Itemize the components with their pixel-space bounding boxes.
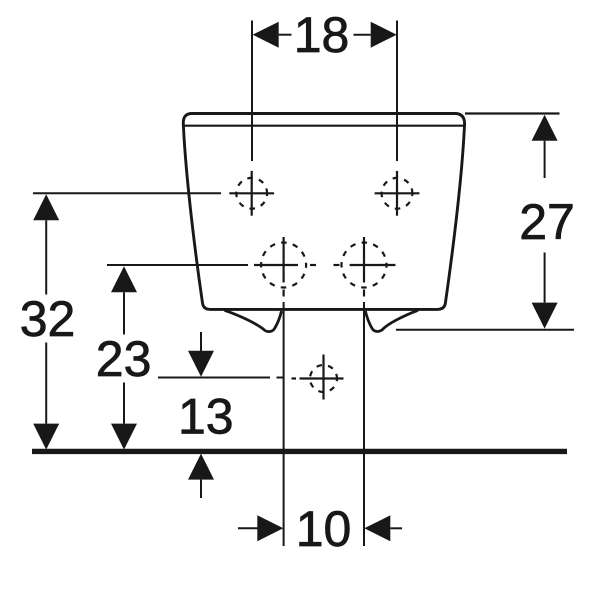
svg-text:10: 10	[296, 501, 352, 557]
svg-text:32: 32	[20, 291, 76, 347]
svg-text:27: 27	[519, 194, 575, 250]
svg-text:13: 13	[178, 388, 234, 444]
svg-text:18: 18	[294, 7, 350, 63]
svg-text:23: 23	[96, 331, 152, 387]
